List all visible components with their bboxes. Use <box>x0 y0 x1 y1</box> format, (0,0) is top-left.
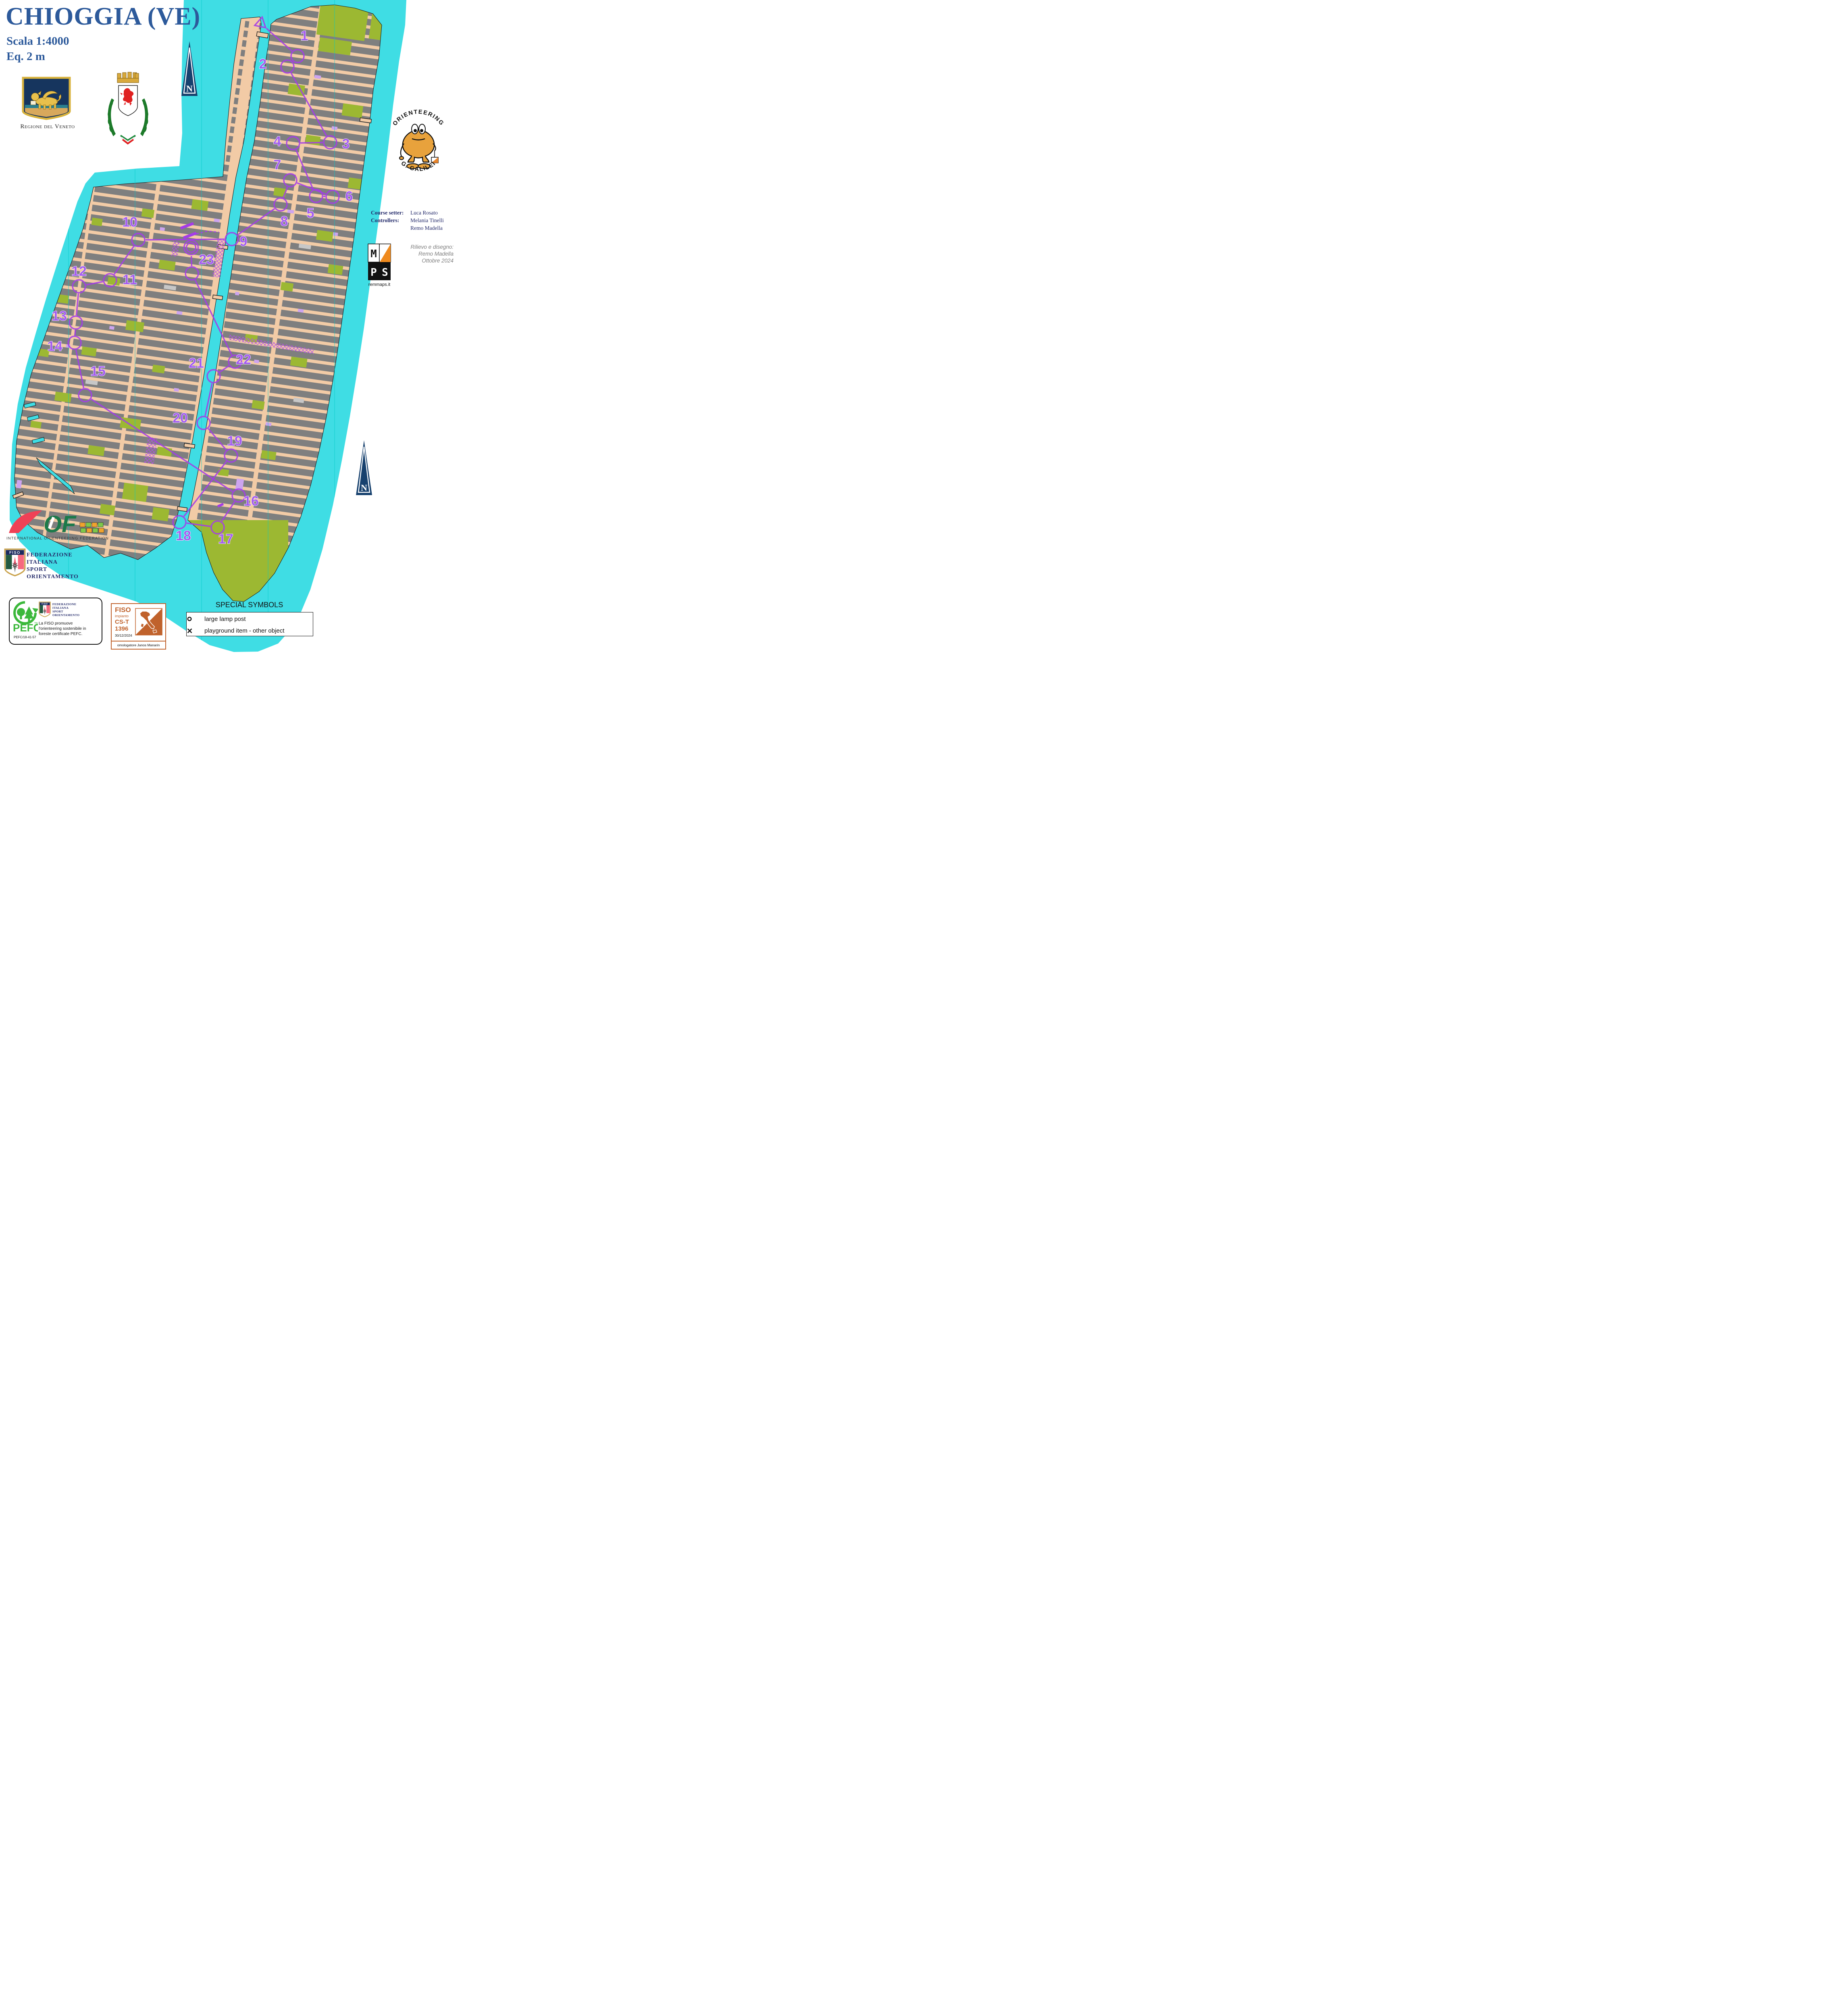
north-letter: N <box>186 83 193 94</box>
control-number-2: 2 <box>259 56 267 72</box>
club-logo-arc-bottom: G. GALILEI <box>400 160 437 173</box>
fiso-italy-flag-icon <box>135 608 162 635</box>
course-leg <box>146 239 225 240</box>
control-number-12: 12 <box>71 264 87 279</box>
north-letter: N <box>361 483 367 493</box>
control-number-4: 4 <box>274 134 281 149</box>
fiso-caption-line2: ITALIANA <box>27 559 79 566</box>
control-number-3: 3 <box>342 136 350 152</box>
homologation-date: 30/12/2024 <box>115 634 132 637</box>
iof-logo-text: OF <box>44 511 77 535</box>
legend-label: large lamp post <box>204 616 246 623</box>
fiso-caption-line3: SPORT <box>27 566 79 573</box>
iof-sail-icon <box>9 510 42 533</box>
control-number-16: 16 <box>243 494 259 509</box>
remmaps-site: remmaps.it <box>368 282 391 287</box>
fiso-caption-line1: FEDERAZIONE <box>27 552 79 559</box>
map-scale: Scala 1:4000 <box>6 35 69 48</box>
map-sheet: 1234567891011121314151617181920212223 CH… <box>0 0 458 652</box>
control-number-8: 8 <box>281 214 288 229</box>
controller-name-1: Melania Tinelli <box>410 217 444 224</box>
control-number-6: 6 <box>345 189 353 204</box>
fiso-logo <box>4 548 26 577</box>
controllers-label: Controllers: <box>371 217 408 224</box>
control-number-17: 17 <box>218 531 233 547</box>
control-number-15: 15 <box>90 364 106 379</box>
large-lamp-post-icon <box>187 616 204 622</box>
pefc-code: PEFC/18-41-57 <box>14 635 36 639</box>
course-leg <box>300 142 323 143</box>
control-number-13: 13 <box>52 308 67 324</box>
chioggia-crest <box>100 68 156 145</box>
fiso-caption-line4: ORIENTAMENTO <box>27 573 79 581</box>
iof-caption: INTERNATIONAL ORIENTEERING FEDERATION <box>6 536 109 541</box>
club-logo-arc-top: ORIENTEERING <box>392 109 445 127</box>
tricolor-ribbon-icon <box>121 135 135 144</box>
special-symbols-box: large lamp post playground item - other … <box>186 612 313 636</box>
playground-item-icon <box>187 628 204 634</box>
survey-line-1: Rilievo e disegno: <box>397 244 454 250</box>
pefc-certification-box: PEFC TM PEFC/18-41-57 FEDERAZIONE ITALIA… <box>9 598 102 645</box>
control-number-10: 10 <box>122 215 137 230</box>
legend-row-playground: playground item - other object <box>187 625 313 636</box>
control-number-7: 7 <box>274 157 281 173</box>
north-arrow-bottom: N <box>356 439 372 496</box>
mural-crown-icon <box>117 72 139 83</box>
survey-line-3: Ottobre 2024 <box>397 257 454 264</box>
control-number-18: 18 <box>176 528 191 544</box>
control-number-21: 21 <box>189 356 204 371</box>
homologation-org: FISO <box>115 606 132 614</box>
svg-text:G. GALILEI: G. GALILEI <box>400 160 437 173</box>
control-number-22: 22 <box>236 352 251 367</box>
remmaps-letter-m: M <box>370 248 377 260</box>
remmaps-logo: M P S <box>368 244 391 281</box>
control-number-14: 14 <box>47 339 62 354</box>
homologation-type: CS-T <box>115 619 132 625</box>
control-number-9: 9 <box>240 234 248 249</box>
controller-name-2: Remo Madella <box>410 224 443 232</box>
fiso-caption: FEDERAZIONE ITALIANA SPORT ORIENTAMENTO <box>27 552 79 581</box>
homologation-number: 1396 <box>115 626 132 632</box>
control-number-20: 20 <box>173 410 188 426</box>
pefc-promo-text: La FISO promuove l'orienteering sostenib… <box>39 621 86 637</box>
course-setter-name: Luca Rosato <box>410 209 438 217</box>
homologation-impianto: impianto <box>115 614 132 618</box>
page-title: CHIOGGIA (VE) <box>6 2 200 31</box>
homologation-footer: omologatore Janos Manarin <box>112 641 165 649</box>
homologation-box: FISO impianto CS-T 1396 30/12/2024 omolo… <box>111 603 166 650</box>
course-leg <box>191 256 192 266</box>
control-number-5: 5 <box>307 206 314 221</box>
legend-row-lamp-post: large lamp post <box>187 614 313 624</box>
remmaps-letter-s: S <box>382 267 388 279</box>
course-credits: Course setter: Luca Rosato Controllers: … <box>371 209 456 232</box>
control-number-23: 23 <box>199 252 214 267</box>
svg-text:ORIENTEERING: ORIENTEERING <box>392 109 445 127</box>
pefc-fiso-shield <box>39 602 51 617</box>
north-arrow-top: N <box>181 40 198 97</box>
control-number-11: 11 <box>123 272 137 287</box>
survey-line-2: Remo Madella <box>397 250 454 257</box>
remmaps-letter-p: P <box>370 267 377 279</box>
veneto-region-logo <box>22 77 71 120</box>
course-setter-label: Course setter: <box>371 209 408 217</box>
club-logo: ORIENTEERING G. GALILEI <box>387 106 450 183</box>
special-symbols-title: SPECIAL SYMBOLS <box>186 601 312 609</box>
map-equidistance: Eq. 2 m <box>6 50 45 63</box>
legend-label: playground item - other object <box>204 627 284 634</box>
pefc-tm: TM <box>34 622 38 625</box>
pefc-logo: PEFC TM <box>12 601 38 635</box>
control-number-1: 1 <box>301 28 308 44</box>
iof-logo: OF <box>6 510 93 535</box>
course-leg <box>75 330 75 335</box>
pefc-fiso-caption: FEDERAZIONE ITALIANA SPORT ORIENTAMENTO <box>52 602 79 617</box>
survey-credit: Rilievo e disegno: Remo Madella Ottobre … <box>397 244 454 264</box>
veneto-region-caption: Regione del Veneto <box>0 123 95 130</box>
control-number-19: 19 <box>227 433 242 449</box>
